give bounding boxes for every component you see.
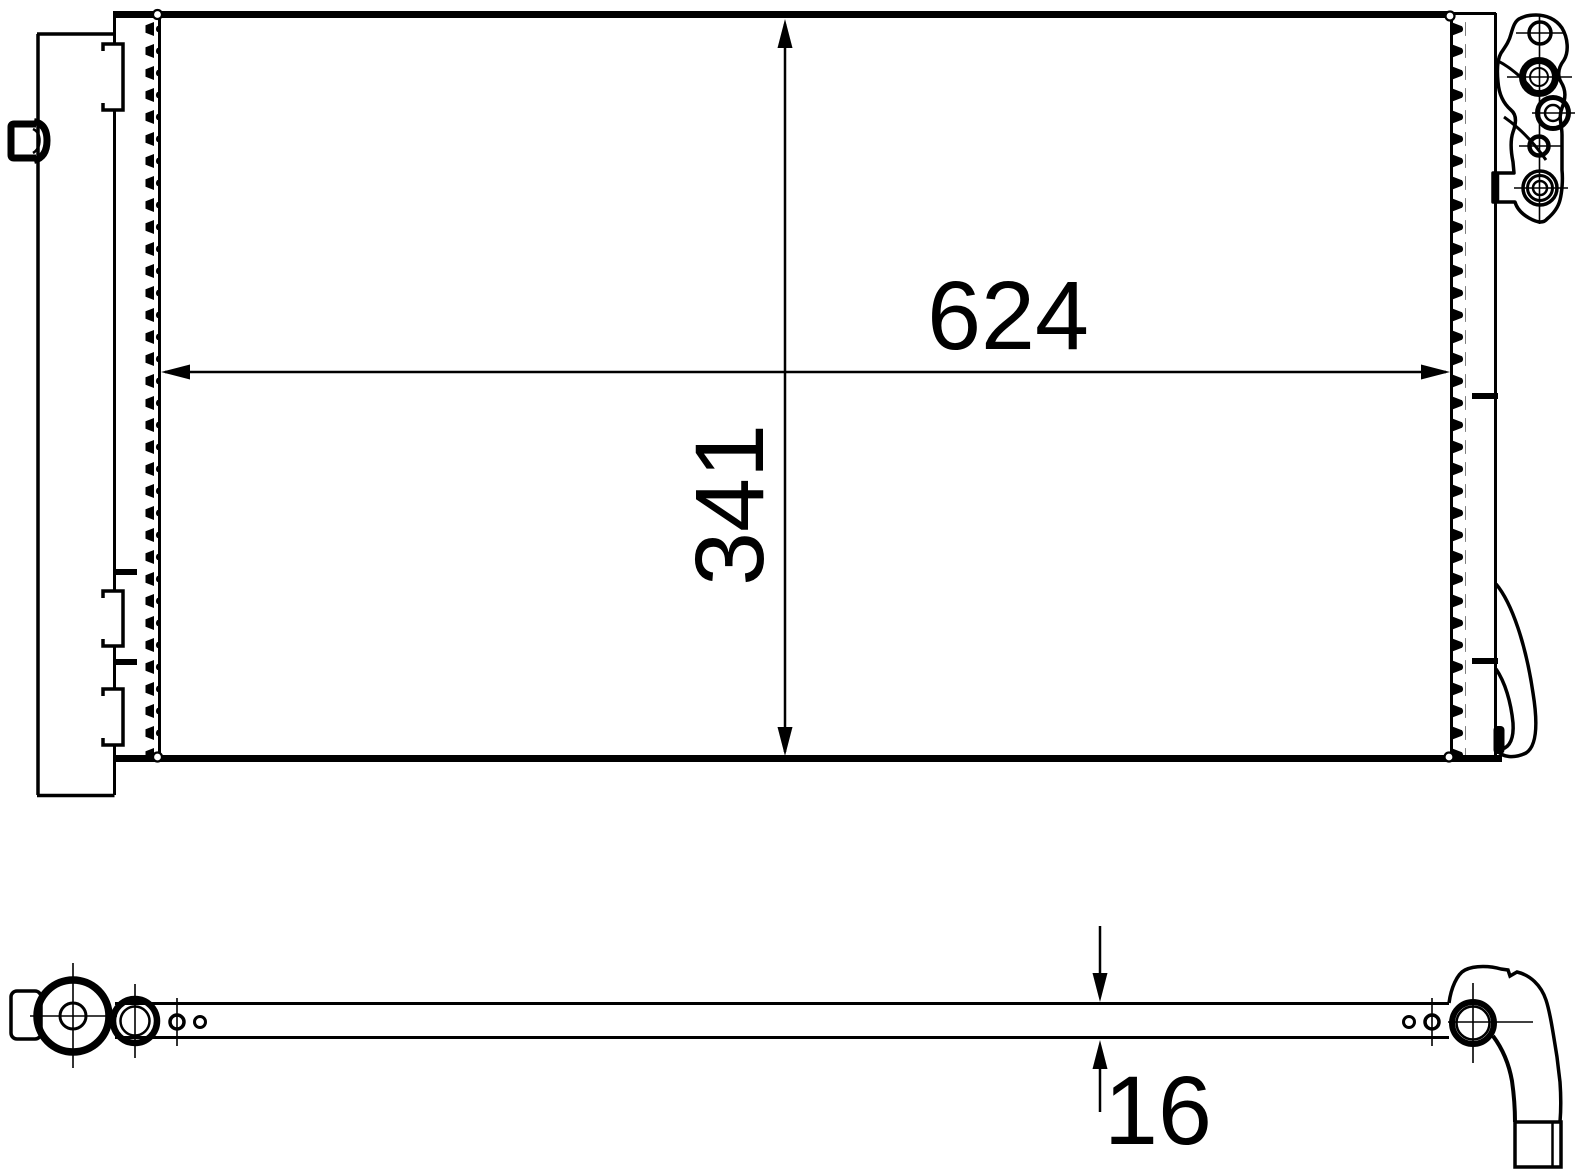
thickness-arrow-down <box>1093 973 1108 1002</box>
right-tick-upper <box>1472 393 1498 399</box>
left-tab-bottom <box>103 689 123 745</box>
left-tab-middle <box>103 591 123 646</box>
side-right-fitting <box>1448 967 1561 1168</box>
height-arrow-bottom <box>778 727 793 756</box>
front-view: 624 341 <box>11 10 1575 796</box>
bottom-right-outlet-pipe <box>1494 584 1536 757</box>
clip-channel <box>11 124 36 158</box>
width-arrow-left <box>161 365 190 380</box>
core-corner-rings <box>153 10 1455 762</box>
right-tick-lower <box>1472 658 1498 664</box>
core-bottom-edge <box>113 755 1502 762</box>
left-side-plate <box>11 13 137 796</box>
left-tab-top <box>103 44 123 110</box>
thickness-dimension-label: 16 <box>1104 1056 1212 1165</box>
strip-hole-left-2 <box>195 1017 206 1028</box>
width-dimension: 624 <box>161 261 1450 380</box>
height-dimension-label: 341 <box>675 424 784 586</box>
left-tick-lower <box>113 659 137 665</box>
strip-hole-right-1 <box>1404 1017 1415 1028</box>
width-dimension-label: 624 <box>927 261 1089 370</box>
core-left-fin-teeth <box>146 18 160 755</box>
technical-drawing-page: 624 341 <box>0 0 1575 1174</box>
condenser-drawing: 624 341 <box>0 0 1575 1174</box>
width-arrow-right <box>1421 365 1450 380</box>
height-arrow-top <box>778 19 793 48</box>
corner-ring-top-left <box>153 10 162 19</box>
condenser-core <box>113 11 1502 762</box>
side-strip <box>115 1004 1449 1038</box>
core-right-fin-teeth <box>1452 18 1466 755</box>
corner-ring-bottom-left <box>153 753 162 762</box>
pipe-end-section <box>1494 726 1505 754</box>
side-left-fittings <box>30 963 206 1068</box>
side-view: 16 <box>11 926 1561 1167</box>
top-right-port-bracket <box>1493 14 1575 224</box>
left-clip-bracket <box>11 122 47 161</box>
pipe-end-connector <box>1515 1122 1561 1167</box>
corner-ring-bottom-right <box>1445 753 1454 762</box>
thickness-dimension: 16 <box>1093 926 1212 1165</box>
height-dimension: 341 <box>675 19 793 756</box>
corner-ring-top-right <box>1446 12 1455 21</box>
core-top-edge <box>113 11 1450 18</box>
left-tick-upper <box>113 569 137 575</box>
